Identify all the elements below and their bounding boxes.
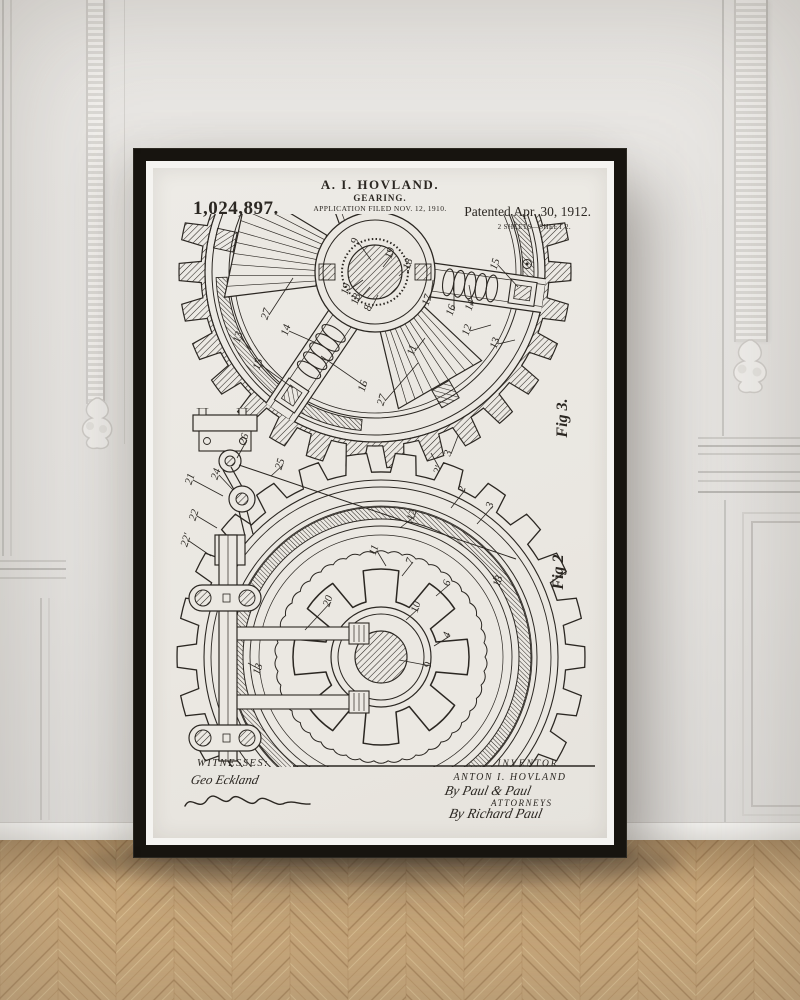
- inventor-name: ANTON I. HOVLAND: [415, 772, 605, 783]
- wall-panel-line: [10, 0, 12, 556]
- figure-caption: Fig 2: [550, 554, 567, 590]
- chair-rail: [0, 577, 66, 579]
- figure-reference-numeral: 22': [178, 531, 194, 548]
- wainscot-panel-line: [724, 500, 726, 822]
- picture-frame: A. I. HOVLAND. GEARING. APPLICATION FILE…: [133, 148, 627, 858]
- wainscot-panel-line: [40, 598, 42, 820]
- dado-rail: [698, 491, 800, 493]
- patent-drawing: 91918151416171918827141516271112131332'F…: [153, 168, 607, 838]
- witness-signature-2: [183, 792, 313, 817]
- moulding-ornament: [76, 396, 116, 455]
- witness-signature-1: Geo Eckland: [189, 772, 260, 788]
- wall-moulding-strip: [734, 0, 768, 342]
- figure-reference-numeral: 12: [460, 323, 475, 338]
- figure-reference-numeral: 13: [488, 336, 503, 351]
- attorney-signature: By Richard Paul: [447, 807, 543, 823]
- moulding-ornament: [726, 338, 772, 399]
- dado-rail: [698, 437, 800, 439]
- figure-reference-numeral: 25: [273, 457, 288, 472]
- wall-panel-line: [722, 0, 724, 436]
- figure-reference-numeral: 16: [444, 303, 459, 318]
- wall-moulding-strip: [86, 0, 105, 404]
- chair-rail: [0, 568, 66, 570]
- patent-poster: A. I. HOVLAND. GEARING. APPLICATION FILE…: [153, 168, 607, 838]
- dado-rail: [698, 480, 800, 482]
- dado-rail: [698, 471, 800, 473]
- frame-inner-lip: A. I. HOVLAND. GEARING. APPLICATION FILE…: [146, 161, 614, 845]
- attorney-firm-signature: By Paul & Paul: [443, 783, 532, 799]
- figure-reference-numeral: 22: [187, 508, 202, 523]
- wall-panel-line: [2, 0, 4, 556]
- figure-reference-numeral: 21: [183, 472, 198, 486]
- dado-rail: [698, 453, 800, 455]
- parquet-floor: [0, 840, 800, 1000]
- inventor-heading: INVENTOR: [453, 759, 603, 769]
- figure-reference-numeral: 27: [375, 393, 390, 408]
- figure-caption: Fig 3.: [554, 398, 571, 438]
- figure-reference-numeral: 16: [356, 379, 371, 394]
- room-scene: A. I. HOVLAND. GEARING. APPLICATION FILE…: [0, 0, 800, 1000]
- wainscot-panel-line: [48, 598, 50, 820]
- wall-panel-line: [124, 0, 125, 444]
- witnesses-heading: WITNESSES:: [197, 758, 269, 769]
- chair-rail: [0, 560, 66, 562]
- figure-reference-numeral: 15: [488, 257, 503, 272]
- dado-rail: [698, 445, 800, 447]
- figure-reference-numeral: 14: [279, 323, 294, 338]
- figure-reference-numeral: 27: [259, 307, 274, 322]
- wainscot-panel: [742, 512, 800, 816]
